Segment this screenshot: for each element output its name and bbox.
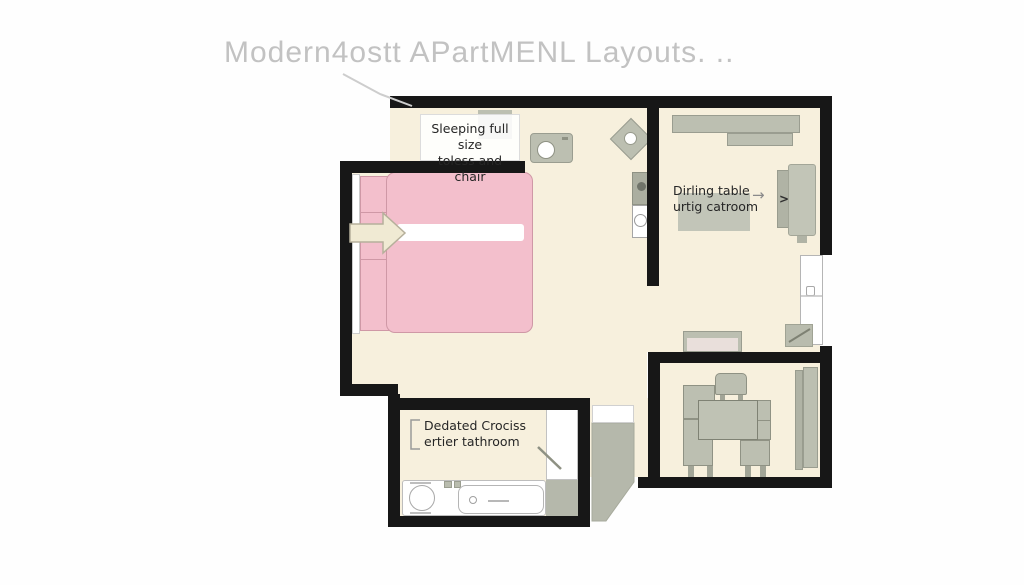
bathroom-label-line1: Dedated Crociss: [424, 418, 526, 434]
wall-right-upper: [820, 96, 832, 255]
slide: Modern4ostt APartMENL Layouts. .. Sleepi…: [0, 0, 1024, 585]
dining-label: Dirling table urtig catroom: [673, 183, 758, 215]
washing-machine: [409, 485, 435, 511]
armchair-tab: [797, 236, 807, 243]
diamond-stool-center: [624, 132, 637, 145]
sleeping-label: Sleeping full size toless and chair: [420, 114, 520, 161]
sofa-seat: [727, 133, 793, 146]
cabinet-back: [795, 370, 803, 470]
wall-dining-left: [648, 352, 660, 488]
toilet-button: [637, 182, 646, 191]
page-title: Modern4ostt APartMENL Layouts. ..: [224, 36, 734, 70]
bathtub: [458, 485, 544, 514]
wall-right-lower: [820, 346, 832, 488]
bed-stripe: [397, 224, 524, 241]
wall-bathroom-bottom: [388, 516, 590, 527]
wall-center-divider: [647, 96, 659, 286]
nightstand-knob: [537, 141, 555, 159]
toilet-bowl-ring: [634, 214, 647, 227]
bathroom-door: [546, 405, 578, 480]
dining-table: [698, 400, 758, 440]
armchair-glyph: >: [779, 192, 789, 206]
cabinet: [803, 367, 818, 468]
wall-bathroom-top: [388, 398, 590, 410]
dining-chair-bottom-right: [740, 440, 770, 466]
wall-bathroom-right: [578, 398, 590, 527]
chair-leg: [688, 466, 694, 477]
sofa-back: [672, 115, 800, 133]
wall-dining-bottom: [638, 477, 832, 488]
door-handle: [806, 286, 815, 296]
console-bench: [683, 331, 742, 352]
hall-shelf: [592, 405, 634, 423]
wall-dining-top: [648, 352, 832, 363]
wall-top: [390, 96, 832, 108]
dining-label-line1: Dirling table: [673, 183, 758, 199]
pillow-divider: [361, 212, 389, 213]
bed-headboard: [352, 174, 360, 334]
chair-leg: [760, 466, 766, 477]
pillow-divider: [361, 259, 389, 260]
nightstand-detail: [562, 137, 568, 140]
chair-leg: [745, 466, 751, 477]
wall-bedroom-left: [340, 161, 352, 396]
wall-bathroom-left: [388, 394, 400, 527]
bathroom-door-floor: [546, 480, 578, 516]
sleeping-label-line1: Sleeping full size: [421, 121, 519, 153]
dining-chair-right: [757, 400, 771, 440]
faucet-knob: [444, 481, 452, 488]
dining-chair-top: [715, 373, 747, 395]
console-bench-cushion: [687, 338, 738, 351]
sleeping-label-line2: toless and chair: [421, 153, 519, 185]
armchair-seat: [788, 164, 816, 236]
nightstand: [530, 133, 573, 163]
drain: [469, 496, 477, 504]
floor-passage: [647, 286, 659, 352]
chair-leg: [707, 466, 713, 477]
dining-label-line2: urtig catroom: [673, 199, 758, 215]
door-mat: [785, 324, 813, 347]
chair-divider: [758, 420, 770, 421]
bathroom-label: Dedated Crociss ertier tathroom: [424, 418, 526, 450]
bed: [386, 172, 533, 333]
bathroom-label-line2: ertier tathroom: [424, 434, 526, 450]
